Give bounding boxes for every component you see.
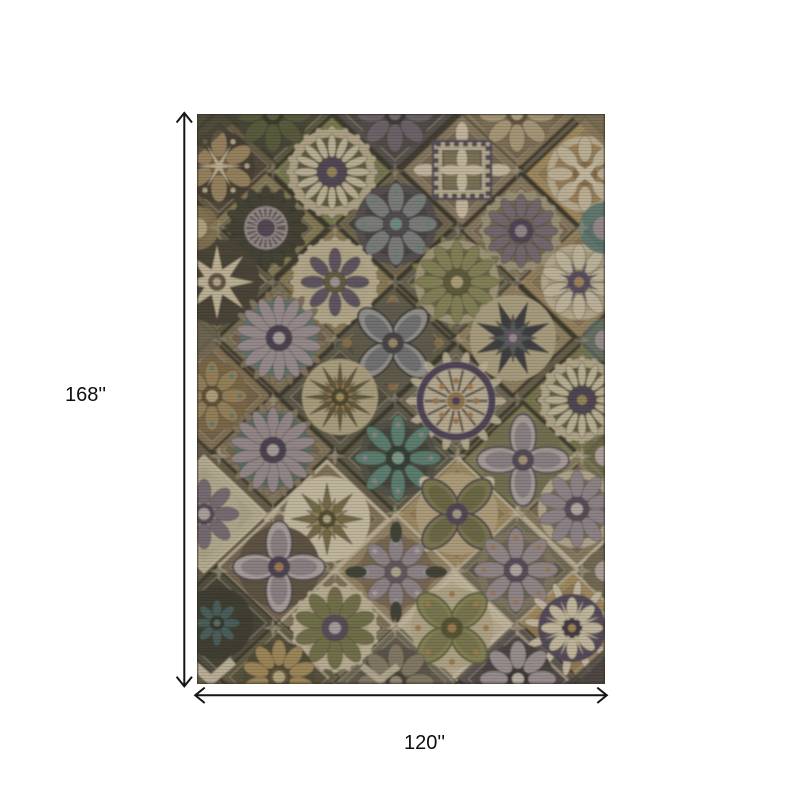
svg-text:120'': 120'' bbox=[404, 732, 445, 754]
svg-text:168'': 168'' bbox=[65, 384, 106, 406]
